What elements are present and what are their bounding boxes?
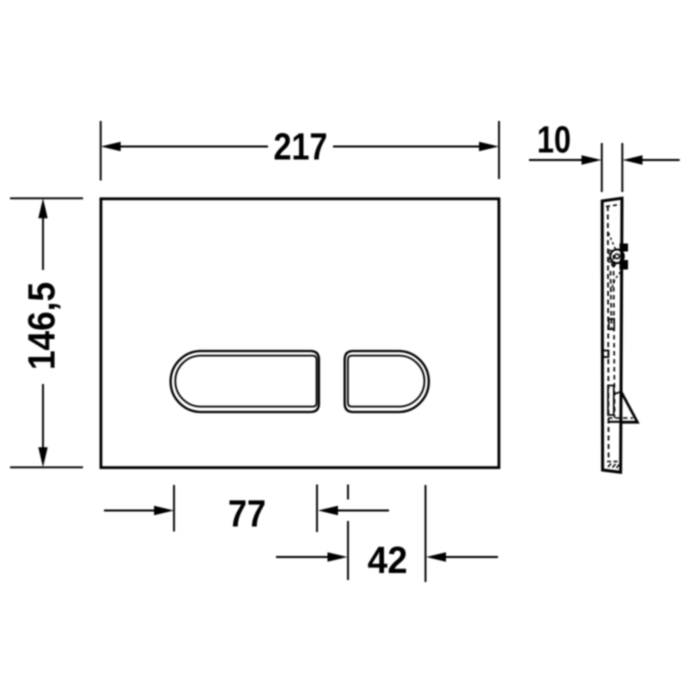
svg-text:42: 42 — [368, 540, 408, 582]
svg-text:217: 217 — [274, 127, 328, 169]
svg-text:146,5: 146,5 — [22, 282, 64, 370]
svg-text:77: 77 — [228, 494, 266, 536]
svg-text:10: 10 — [537, 120, 571, 162]
